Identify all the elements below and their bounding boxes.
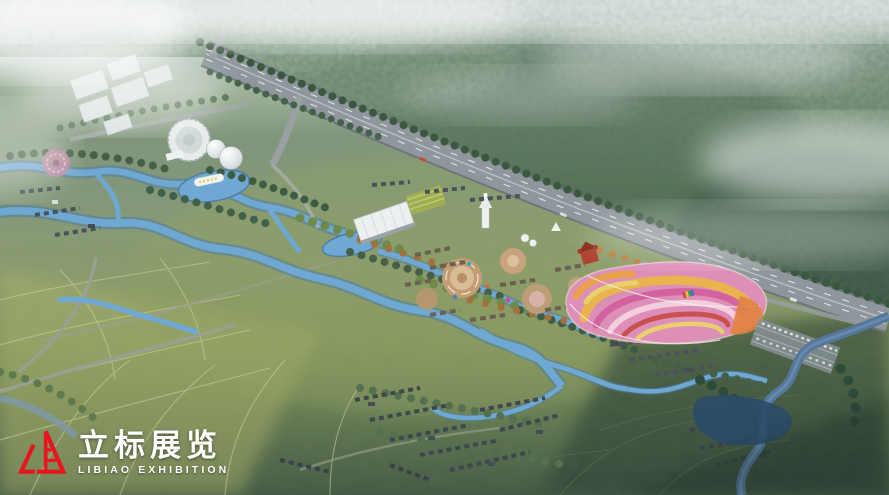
masterplan-scene — [0, 0, 889, 495]
libiao-watermark: 立标展览 LIBIAO EXHIBITION — [16, 425, 229, 481]
aerial-rendering-canvas: 立标展览 LIBIAO EXHIBITION — [0, 0, 889, 495]
libiao-logo-icon — [16, 425, 68, 481]
watermark-text: 立标展览 LIBIAO EXHIBITION — [78, 430, 229, 476]
flower-fields — [566, 262, 767, 344]
watermark-text-en: LIBIAO EXHIBITION — [78, 465, 229, 476]
watermark-text-zh: 立标展览 — [78, 430, 229, 461]
